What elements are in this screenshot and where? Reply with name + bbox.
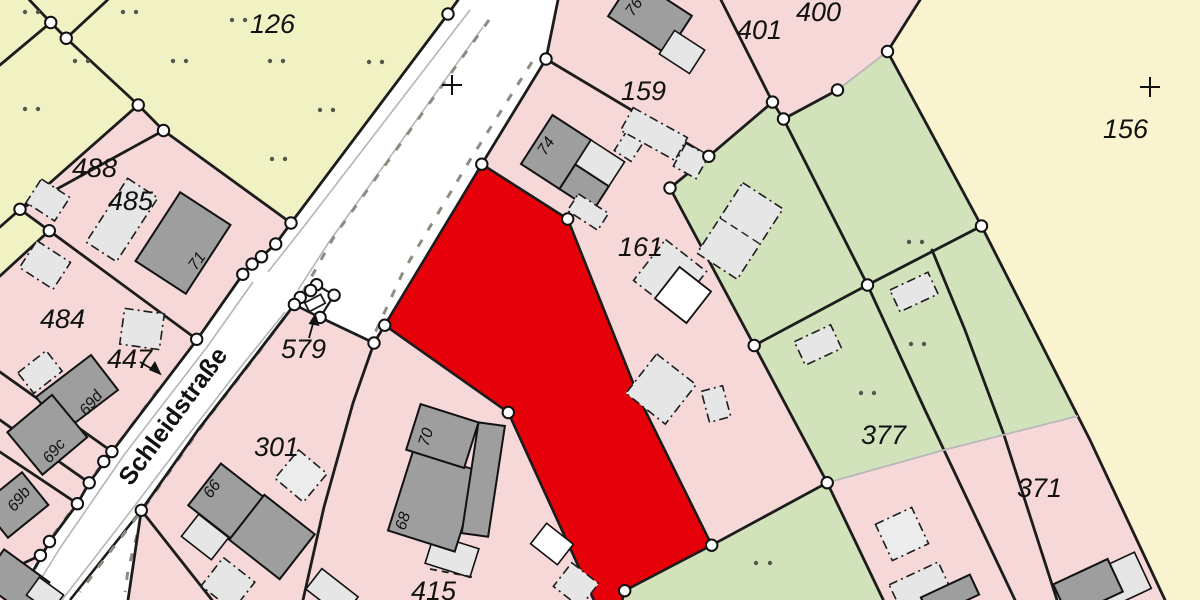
svg-text:126: 126 bbox=[250, 9, 296, 39]
svg-text:488: 488 bbox=[72, 153, 117, 183]
svg-text:447: 447 bbox=[107, 344, 153, 374]
svg-text:415: 415 bbox=[411, 576, 457, 600]
svg-text:161: 161 bbox=[618, 232, 663, 262]
svg-text:484: 484 bbox=[40, 304, 85, 334]
svg-text:400: 400 bbox=[796, 0, 841, 27]
svg-text:156: 156 bbox=[1103, 114, 1149, 144]
svg-text:377: 377 bbox=[861, 420, 907, 450]
svg-text:485: 485 bbox=[108, 186, 154, 216]
svg-text:579: 579 bbox=[281, 334, 326, 364]
svg-text:401: 401 bbox=[737, 15, 782, 45]
svg-text:301: 301 bbox=[254, 432, 299, 462]
svg-text:159: 159 bbox=[621, 76, 666, 106]
svg-text:371: 371 bbox=[1017, 473, 1062, 503]
